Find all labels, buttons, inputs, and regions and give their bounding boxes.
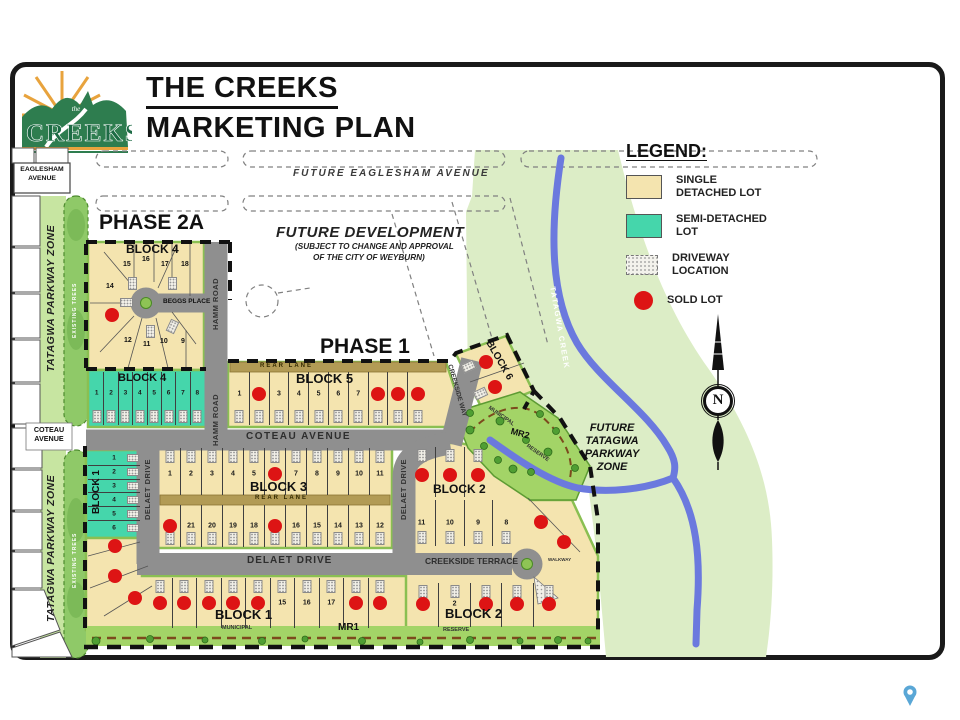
lot-number: 6 — [167, 390, 171, 397]
sold-lot-dot — [443, 468, 457, 482]
map-label: AVENUE — [34, 435, 63, 442]
lot-number: 3 — [112, 483, 116, 490]
driveway-hatch — [334, 532, 343, 545]
map-label: 18 — [181, 261, 189, 268]
lot-cell: 11 — [408, 500, 435, 546]
map-label: ZONE — [597, 462, 628, 473]
lot-cell: 8 — [190, 372, 204, 425]
map-label: AVENUE — [28, 176, 56, 183]
driveway-hatch — [127, 454, 139, 462]
lot-cell — [160, 505, 180, 547]
driveway-hatch — [292, 450, 301, 463]
map-label: BLOCK 2 — [433, 483, 486, 495]
legend-swatch-single — [626, 175, 662, 199]
map-label: FUTURE — [590, 423, 635, 434]
driveway-hatch — [121, 410, 130, 423]
map-label: BLOCK 3 — [250, 480, 307, 493]
driveway-hatch — [166, 450, 175, 463]
map-label: TATAGWA PARKWAY ZONE — [46, 225, 57, 372]
lot-number: 1 — [237, 391, 241, 398]
driveway-hatch — [146, 325, 155, 338]
lot-cell — [368, 578, 393, 628]
legend-title: LEGEND: — [626, 141, 836, 162]
lot-number: 16 — [292, 523, 300, 530]
map-label: PHASE 1 — [320, 336, 410, 357]
lot-number: 11 — [376, 470, 383, 477]
driveway-hatch — [120, 298, 133, 307]
lot-number: 4 — [297, 391, 301, 398]
map-label: BEGGS PLACE — [163, 299, 210, 306]
lot-number: 3 — [124, 390, 128, 397]
lot-cell: 1 — [230, 372, 249, 425]
lot-cell — [501, 583, 532, 627]
driveway-hatch — [354, 410, 363, 423]
map-label: COTEAU — [34, 426, 64, 433]
lot-cell: 8 — [306, 448, 327, 495]
map-label: WALKWAY — [548, 558, 571, 563]
driveway-hatch — [474, 449, 483, 462]
map-label: N — [713, 393, 724, 408]
location-pin-icon — [904, 686, 917, 707]
driveway-hatch — [544, 585, 553, 598]
driveway-hatch — [393, 410, 402, 423]
driveway-hatch — [250, 450, 259, 463]
sold-lot-dot — [108, 569, 122, 583]
lot-number: 16 — [303, 600, 311, 607]
legend-item-single: SINGLE DETACHED LOT — [626, 174, 836, 200]
map-label: 17 — [161, 261, 169, 268]
driveway-hatch — [229, 580, 238, 593]
lot-cell: 7 — [175, 372, 189, 425]
lot-cell — [172, 578, 197, 628]
driveway-hatch — [278, 580, 287, 593]
legend-label: SOLD LOT — [667, 294, 723, 307]
lot-row-block3-south: 212019181615141312 — [160, 505, 390, 547]
driveway-hatch — [204, 580, 213, 593]
map-label: 9 — [181, 338, 185, 345]
map-label: COTEAU AVENUE — [246, 432, 351, 442]
legend-label: SEMI-DETACHED LOT — [676, 213, 767, 239]
lot-number: 6 — [112, 524, 116, 531]
map-label: OF THE CITY OF WEYBURN) — [313, 254, 425, 262]
driveway-hatch — [376, 450, 385, 463]
driveway-hatch — [235, 410, 244, 423]
lot-number: 3 — [210, 470, 214, 477]
lot-number: 20 — [208, 523, 216, 530]
legend-swatch-sold — [634, 291, 653, 310]
marketing-plan-page: the CREEKS THE CREEKS MARKETING PLAN — [0, 0, 960, 720]
lot-number: 9 — [476, 520, 480, 527]
driveway-hatch — [314, 410, 323, 423]
sold-lot-dot — [177, 596, 191, 610]
lot-number: 2 — [189, 470, 193, 477]
lot-cell: 2 — [180, 448, 201, 495]
sold-lot-dot — [471, 468, 485, 482]
map-label: REAR LANE — [260, 363, 313, 369]
map-label: EAGLESHAM — [20, 167, 63, 174]
legend-label: SINGLE DETACHED LOT — [676, 174, 761, 200]
driveway-hatch — [271, 532, 280, 545]
driveway-hatch — [127, 468, 139, 476]
sold-lot-dot — [510, 597, 524, 611]
lot-cell: 10 — [348, 448, 369, 495]
map-label: MUNICIPAL — [222, 626, 252, 632]
map-label: 14 — [106, 283, 114, 290]
driveway-hatch — [419, 585, 428, 598]
driveway-hatch — [127, 482, 139, 490]
lot-number: 15 — [278, 600, 286, 607]
map-label: FUTURE EAGLESHAM AVENUE — [293, 169, 490, 179]
lot-cell: 8 — [492, 500, 520, 546]
sold-lot-dot — [371, 387, 385, 401]
driveway-hatch — [294, 410, 303, 423]
map-label: PARKWAY — [585, 449, 640, 460]
driveway-hatch — [502, 531, 511, 544]
lot-number: 8 — [196, 390, 200, 397]
sold-lot-dot — [128, 591, 142, 605]
lot-number: 1 — [168, 470, 172, 477]
lot-number: 9 — [336, 470, 340, 477]
legend-label: DRIVEWAY LOCATION — [672, 252, 730, 278]
map-label: PHASE 2A — [99, 212, 204, 233]
driveway-hatch — [150, 410, 159, 423]
lot-number: 5 — [317, 391, 321, 398]
driveway-hatch — [334, 450, 343, 463]
lot-number: 4 — [138, 390, 142, 397]
lot-cell — [148, 578, 172, 628]
lot-cell: 4 — [222, 448, 243, 495]
legend-swatch-semi — [626, 214, 662, 238]
map-label: HAMM ROAD — [212, 394, 220, 446]
sold-lot-dot — [268, 519, 282, 533]
driveway-hatch — [255, 410, 264, 423]
lot-cell: 17 — [319, 578, 344, 628]
lot-number: 5 — [252, 470, 256, 477]
sold-lot-dot — [391, 387, 405, 401]
map-label: REAR LANE — [255, 495, 308, 501]
lot-cell: 19 — [222, 505, 243, 547]
lot-cell: 2 — [103, 372, 117, 425]
map-label: MR1 — [338, 623, 359, 633]
lot-cell — [408, 583, 438, 627]
sold-lot-dot — [373, 596, 387, 610]
driveway-hatch — [351, 580, 360, 593]
driveway-hatch — [450, 585, 459, 598]
map-label: EXISTING TREES — [73, 283, 78, 338]
lot-number: 8 — [315, 470, 319, 477]
lot-number: 6 — [336, 391, 340, 398]
lot-number: 10 — [446, 520, 454, 527]
lot-cell: 18 — [243, 505, 264, 547]
driveway-hatch — [413, 410, 422, 423]
lot-cell: 15 — [306, 505, 327, 547]
lot-number: 18 — [250, 523, 258, 530]
lot-cell: 3 — [201, 448, 222, 495]
lot-number: 3 — [277, 391, 281, 398]
map-label: 15 — [123, 261, 131, 268]
lot-cell: 1 — [90, 372, 103, 425]
driveway-hatch — [208, 450, 217, 463]
legend-items: SINGLE DETACHED LOTSEMI-DETACHED LOTDRIV… — [626, 174, 836, 310]
legend-item-semi: SEMI-DETACHED LOT — [626, 213, 836, 239]
lot-cell: 16 — [285, 505, 306, 547]
lot-cell: 1 — [88, 452, 140, 465]
lot-number: 2 — [109, 390, 113, 397]
sold-lot-dot — [557, 535, 571, 549]
driveway-hatch — [474, 531, 483, 544]
map-label: BLOCK 1 — [215, 608, 272, 621]
driveway-hatch — [135, 410, 144, 423]
driveway-hatch — [513, 585, 522, 598]
legend-item-driveway: DRIVEWAY LOCATION — [626, 252, 836, 278]
driveway-hatch — [271, 450, 280, 463]
driveway-hatch — [128, 277, 137, 290]
lot-cell: 14 — [327, 505, 348, 547]
driveway-hatch — [482, 585, 491, 598]
map-label: 11 — [143, 341, 150, 348]
legend-item-sold: SOLD LOT — [626, 291, 836, 310]
sold-lot-dot — [488, 380, 502, 394]
sold-lot-dot — [415, 468, 429, 482]
driveway-hatch — [180, 580, 189, 593]
map-label: (SUBJECT TO CHANGE AND APPROVAL — [295, 243, 454, 251]
lot-cell: 16 — [294, 578, 319, 628]
driveway-hatch — [313, 450, 322, 463]
sold-lot-dot — [411, 387, 425, 401]
lot-cell: 21 — [180, 505, 201, 547]
driveway-hatch — [250, 532, 259, 545]
driveway-hatch — [229, 450, 238, 463]
driveway-hatch — [92, 410, 101, 423]
map-label: TATAGWA PARKWAY ZONE — [46, 475, 57, 622]
lot-number: 19 — [229, 523, 237, 530]
driveway-hatch — [193, 410, 202, 423]
lot-number: 11 — [418, 520, 425, 527]
lot-cell: 1 — [160, 448, 180, 495]
driveway-hatch — [445, 449, 454, 462]
sold-lot-dot — [534, 515, 548, 529]
driveway-hatch — [302, 580, 311, 593]
map-label: 16 — [142, 256, 150, 263]
driveway-hatch — [355, 532, 364, 545]
lot-number: 7 — [356, 391, 360, 398]
lot-row-block2-mid: 111098 — [408, 500, 520, 546]
driveway-hatch — [327, 580, 336, 593]
lot-number: 4 — [231, 470, 235, 477]
lot-number: 5 — [112, 510, 116, 517]
driveway-hatch — [127, 510, 139, 518]
lot-cell — [407, 372, 427, 425]
map-label: BLOCK 1 — [92, 470, 102, 514]
lot-cell: 20 — [201, 505, 222, 547]
lot-number: 13 — [355, 523, 363, 530]
lot-number: 2 — [112, 469, 116, 476]
driveway-hatch — [107, 410, 116, 423]
driveway-hatch — [253, 580, 262, 593]
lot-number: 7 — [294, 470, 298, 477]
lot-number: 8 — [504, 520, 508, 527]
lot-number: 1 — [112, 455, 116, 462]
driveway-hatch — [313, 532, 322, 545]
driveway-hatch — [292, 532, 301, 545]
driveway-hatch — [127, 496, 139, 504]
map-label: TATAGWA — [585, 436, 638, 447]
driveway-hatch — [166, 532, 175, 545]
sold-lot-dot — [153, 596, 167, 610]
lot-number: 12 — [376, 523, 384, 530]
driveway-hatch — [373, 410, 382, 423]
driveway-hatch — [168, 277, 177, 290]
lot-cell: 9 — [327, 448, 348, 495]
lot-cell — [368, 372, 388, 425]
map-label: HAMM ROAD — [212, 278, 220, 330]
sold-lot-dot — [108, 539, 122, 553]
sold-lot-dot — [252, 387, 266, 401]
sold-lot-dot — [349, 596, 363, 610]
lot-cell: 13 — [348, 505, 369, 547]
legend-swatch-driveway — [626, 255, 658, 275]
map-label: CREEKSIDE TERRACE — [425, 557, 518, 566]
lot-cell: 12 — [369, 505, 390, 547]
driveway-hatch — [334, 410, 343, 423]
driveway-hatch — [127, 524, 139, 532]
map-label: EXISTING TREES — [73, 533, 78, 588]
map-label: RESERVE — [443, 628, 469, 634]
driveway-hatch — [376, 580, 385, 593]
driveway-hatch — [164, 410, 173, 423]
driveway-hatch — [155, 580, 164, 593]
driveway-hatch — [187, 450, 196, 463]
map-label: BLOCK 5 — [296, 372, 353, 385]
map-label: DELAET DRIVE — [247, 556, 332, 566]
map-label: FUTURE DEVELOPMENT — [276, 225, 464, 240]
lot-number: 4 — [112, 496, 116, 503]
map-label: BLOCK 2 — [445, 607, 502, 620]
lot-cell: 3 — [269, 372, 289, 425]
map-label: DELAET DRIVE — [400, 459, 408, 520]
sold-lot-dot — [105, 308, 119, 322]
driveway-hatch — [274, 410, 283, 423]
lot-cell: 15 — [270, 578, 295, 628]
map-label: BLOCK 4 — [118, 373, 166, 384]
lot-cell — [343, 578, 368, 628]
legend: LEGEND: SINGLE DETACHED LOTSEMI-DETACHED… — [626, 141, 836, 323]
lot-cell: 11 — [369, 448, 390, 495]
driveway-hatch — [187, 532, 196, 545]
map-label: 10 — [160, 338, 168, 345]
lot-number: 7 — [181, 390, 185, 397]
sold-lot-dot — [542, 597, 556, 611]
lot-cell: 9 — [464, 500, 492, 546]
sold-lot-dot — [416, 597, 430, 611]
lot-cell — [408, 447, 435, 497]
driveway-hatch — [376, 532, 385, 545]
lot-number: 14 — [334, 523, 342, 530]
driveway-hatch — [178, 410, 187, 423]
lot-number: 1 — [95, 390, 99, 397]
sold-lot-dot — [202, 596, 216, 610]
driveway-hatch — [445, 531, 454, 544]
lot-cell: 6 — [88, 520, 140, 534]
lot-number: 17 — [327, 600, 335, 607]
lot-number: 10 — [355, 470, 363, 477]
driveway-hatch — [229, 532, 238, 545]
driveway-hatch — [355, 450, 364, 463]
lot-cell — [249, 372, 269, 425]
sold-lot-dot — [163, 519, 177, 533]
driveway-hatch — [417, 531, 426, 544]
lot-number: 21 — [187, 523, 195, 530]
lot-cell — [533, 583, 564, 627]
lot-cell — [264, 505, 285, 547]
lot-cell — [387, 372, 407, 425]
map-label: BLOCK 4 — [126, 243, 179, 255]
lot-number: 5 — [152, 390, 156, 397]
lot-number: 15 — [313, 523, 321, 530]
map-label: 12 — [124, 337, 132, 344]
lot-cell: 10 — [435, 500, 463, 546]
driveway-hatch — [208, 532, 217, 545]
map-label: DELAET DRIVE — [144, 459, 152, 520]
driveway-hatch — [417, 449, 426, 462]
